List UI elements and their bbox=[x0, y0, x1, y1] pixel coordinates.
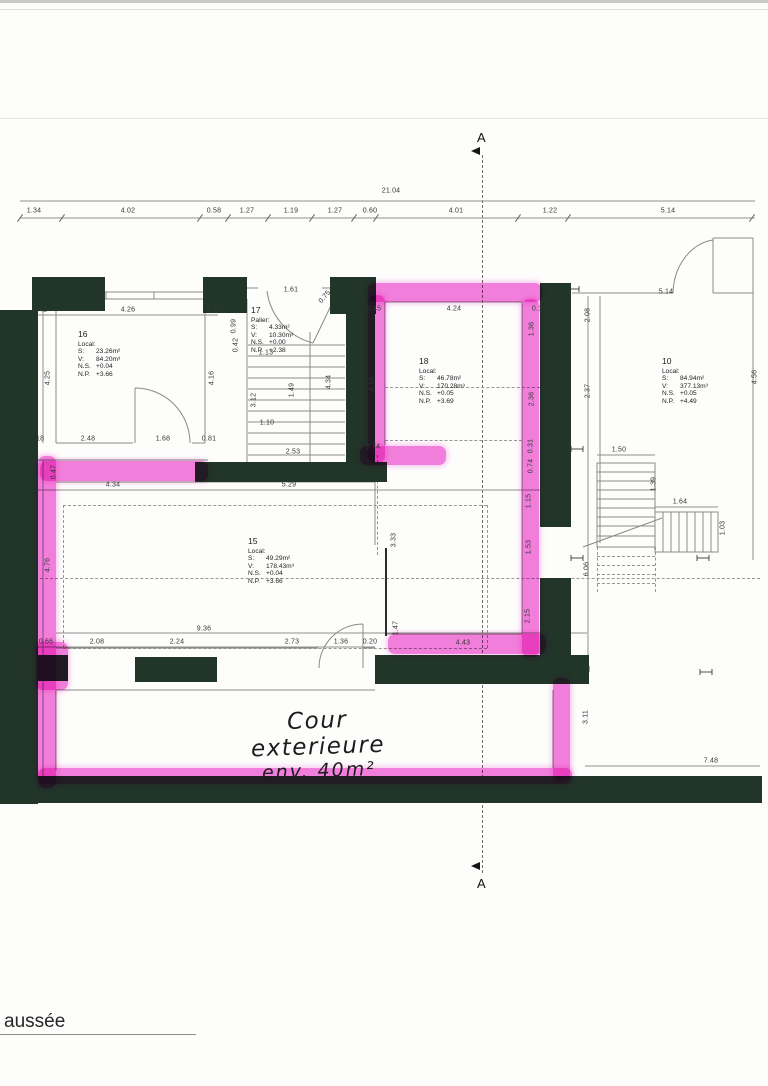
section-label-top: A bbox=[477, 130, 486, 145]
dim-label: 0.81 bbox=[202, 436, 216, 443]
stat-value: 84.20m³ bbox=[96, 356, 120, 364]
stat-value: +3.66 bbox=[266, 578, 283, 586]
dim-label: 1.27 bbox=[240, 208, 254, 215]
dim-label: 1.47 bbox=[393, 621, 400, 635]
stat-value: 178.43m³ bbox=[266, 563, 294, 571]
dim-label: 0.66 bbox=[39, 639, 53, 646]
dim-label: 5.14 bbox=[659, 289, 673, 296]
stat-label: N.S. bbox=[662, 390, 680, 398]
room-kind: Local: bbox=[419, 368, 465, 376]
stat-value: +0.00 bbox=[269, 339, 286, 347]
dim-label: 1.61 bbox=[284, 287, 298, 294]
dim-label: 1.53 bbox=[526, 540, 533, 554]
plan-linework bbox=[0, 0, 768, 1086]
dim-label: 1.64 bbox=[673, 499, 687, 506]
dim-label: 0.45 bbox=[367, 306, 381, 313]
stat-label: N.P. bbox=[78, 371, 96, 379]
dim-label: 4.25 bbox=[45, 371, 52, 385]
highlight-corner-blob bbox=[36, 642, 68, 690]
dim-label: 1.39 bbox=[651, 477, 658, 491]
title-block-text: aussée bbox=[4, 1011, 65, 1033]
stat-label: S: bbox=[251, 324, 269, 332]
stat-label: V: bbox=[248, 563, 266, 571]
stat-label: N.P. bbox=[248, 578, 266, 586]
section-label-bottom: A bbox=[477, 876, 486, 891]
stat-label: N.S. bbox=[251, 339, 269, 347]
dim-label: 1.50 bbox=[612, 447, 626, 454]
dim-label: 4.56 bbox=[752, 370, 759, 384]
stat-label: V: bbox=[419, 383, 437, 391]
dim-label: 0.20 bbox=[363, 639, 377, 646]
stat-label: V: bbox=[78, 356, 96, 364]
dim-label: 4.01 bbox=[449, 208, 463, 215]
dim-label: 5.29 bbox=[282, 482, 296, 489]
dim-label: 1.68 bbox=[156, 436, 170, 443]
dim-label: 21.04 bbox=[382, 188, 401, 195]
room-kind: Local: bbox=[78, 341, 120, 349]
highlight-room18-top bbox=[368, 283, 542, 302]
dim-label: 1.22 bbox=[543, 208, 557, 215]
stat-label: S: bbox=[662, 375, 680, 383]
dim-label: 2.24 bbox=[170, 639, 184, 646]
room-17-info: 17 Palier: S:4.33m² V:10.30m³ N.S.+0.00 … bbox=[251, 306, 293, 354]
stat-value: +0.04 bbox=[266, 570, 283, 578]
room-kind: Local: bbox=[248, 548, 294, 556]
dim-label: 3.12 bbox=[251, 393, 258, 407]
room-kind: Palier: bbox=[251, 317, 293, 325]
stat-label: V: bbox=[662, 383, 680, 391]
stat-value: +4.49 bbox=[680, 398, 697, 406]
dim-label: 0.58 bbox=[207, 208, 221, 215]
dim-label: 0.42 bbox=[233, 338, 240, 352]
stat-value: 49.29m² bbox=[266, 555, 290, 563]
wall-segment bbox=[135, 657, 217, 682]
stat-label: V: bbox=[251, 332, 269, 340]
stat-label: N.P. bbox=[662, 398, 680, 406]
stat-value: 84.94m² bbox=[680, 375, 704, 383]
stat-value: +0.05 bbox=[437, 390, 454, 398]
room-16-info: 16 Local: S:23.26m² V:84.20m³ N.S.+0.04 … bbox=[78, 330, 120, 378]
stat-value: +0.05 bbox=[680, 390, 697, 398]
dim-label: 0.47 bbox=[51, 465, 58, 479]
stat-label: S: bbox=[419, 375, 437, 383]
dim-label: 1.36 bbox=[334, 639, 348, 646]
dim-label: 1.36 bbox=[529, 322, 536, 336]
dim-label: 4.34 bbox=[326, 375, 333, 389]
wall-segment bbox=[195, 462, 387, 482]
dim-label: 0.42 bbox=[33, 307, 47, 314]
room-number: 17 bbox=[251, 306, 293, 316]
stat-value: +0.04 bbox=[96, 363, 113, 371]
room16-walls-windows bbox=[38, 292, 208, 460]
dim-label: 4.26 bbox=[121, 307, 135, 314]
stat-value: 46.78m² bbox=[437, 375, 461, 383]
highlight-left-wall bbox=[38, 456, 56, 788]
dim-label: 1.15 bbox=[526, 494, 533, 508]
dim-label: 5.14 bbox=[661, 208, 675, 215]
dim-label: 2.48 bbox=[81, 436, 95, 443]
dim-label: 0.60 bbox=[363, 208, 377, 215]
dim-label: 1.13 bbox=[259, 350, 273, 357]
dim-label: 2.15 bbox=[525, 609, 532, 623]
stat-value: +3.69 bbox=[437, 398, 454, 406]
room-number: 10 bbox=[662, 357, 708, 367]
dim-label: 2.08 bbox=[90, 639, 104, 646]
stat-label: N.P. bbox=[419, 398, 437, 406]
dim-label: 2.08 bbox=[585, 308, 592, 322]
handwritten-line1: Cour exterieure bbox=[217, 705, 419, 764]
stat-value: 23.26m² bbox=[96, 348, 120, 356]
dim-label: 4.34 bbox=[106, 482, 120, 489]
dim-label: 0.99 bbox=[231, 319, 238, 333]
room-15-info: 15 Local: S:49.29m² V:178.43m³ N.S.+0.04… bbox=[248, 537, 294, 585]
dim-label: 1.27 bbox=[328, 208, 342, 215]
highlight-room18-right bbox=[522, 299, 539, 657]
dim-label: 6.06 bbox=[584, 562, 591, 576]
stat-label: S: bbox=[78, 348, 96, 356]
room-number: 15 bbox=[248, 537, 294, 547]
dim-label: 0.74 bbox=[366, 444, 380, 451]
stat-value: 170.28m³ bbox=[437, 383, 465, 391]
stat-label: N.S. bbox=[78, 363, 96, 371]
stat-value: 10.30m³ bbox=[269, 332, 293, 340]
room18-outline bbox=[385, 302, 522, 634]
dim-label: 4.76 bbox=[45, 558, 52, 572]
dim-label: 2.37 bbox=[585, 384, 592, 398]
dim-label: 3.33 bbox=[391, 533, 398, 547]
dim-label: 4.43 bbox=[456, 640, 470, 647]
room-number: 18 bbox=[419, 357, 465, 367]
dim-label: 4.02 bbox=[121, 208, 135, 215]
dim-label: 0.31 bbox=[528, 439, 535, 453]
room-18-info: 18 Local: S:46.78m² V:170.28m³ N.S.+0.05… bbox=[419, 357, 465, 405]
handwritten-note: Cour exterieure env. 40m² bbox=[217, 705, 419, 786]
title-block-rule bbox=[0, 1034, 196, 1035]
dim-label: 4.16 bbox=[369, 377, 376, 391]
highlight-courtyard-right bbox=[553, 678, 570, 780]
section-arrow-top bbox=[471, 147, 480, 155]
dim-label: 2.73 bbox=[285, 639, 299, 646]
room-10-info: 10 Local: S:84.94m² V:377.13m³ N.S.+0.05… bbox=[662, 357, 708, 405]
dim-label: 4.16 bbox=[209, 371, 216, 385]
section-arrow-bottom bbox=[471, 862, 480, 870]
stat-label: N.S. bbox=[419, 390, 437, 398]
dim-label: 0.74 bbox=[528, 459, 535, 473]
dim-label: 0.49 bbox=[207, 307, 221, 314]
dim-label: 7.48 bbox=[704, 758, 718, 765]
wall-segment bbox=[540, 283, 571, 527]
dim-label: 3.11 bbox=[583, 710, 590, 724]
dim-label: 0.1 bbox=[532, 306, 542, 313]
dim-label: 1.03 bbox=[720, 521, 727, 535]
scanned-floor-plan-page: { "colors":{"wall":"#223529","highlighte… bbox=[0, 0, 768, 1086]
wall-left-outer bbox=[0, 310, 38, 804]
room-number: 16 bbox=[78, 330, 120, 340]
highlight-under-room16 bbox=[40, 461, 208, 481]
stat-value: +3.66 bbox=[96, 371, 113, 379]
dim-label: 2.53 bbox=[286, 449, 300, 456]
dim-label: 1.19 bbox=[284, 208, 298, 215]
dim-label: 2.36 bbox=[529, 392, 536, 406]
dim-label: 1.34 bbox=[27, 208, 41, 215]
stat-label: N.S. bbox=[248, 570, 266, 578]
dim-label: 1.49 bbox=[289, 383, 296, 397]
stat-label: S: bbox=[248, 555, 266, 563]
room-kind: Local: bbox=[662, 368, 708, 376]
stat-value: 377.13m³ bbox=[680, 383, 708, 391]
stat-value: 4.33m² bbox=[269, 324, 290, 332]
dim-label: .18 bbox=[34, 436, 44, 443]
dim-label: 1.10 bbox=[260, 420, 274, 427]
dim-label: 9.36 bbox=[197, 626, 211, 633]
dim-label: 4.24 bbox=[447, 306, 461, 313]
